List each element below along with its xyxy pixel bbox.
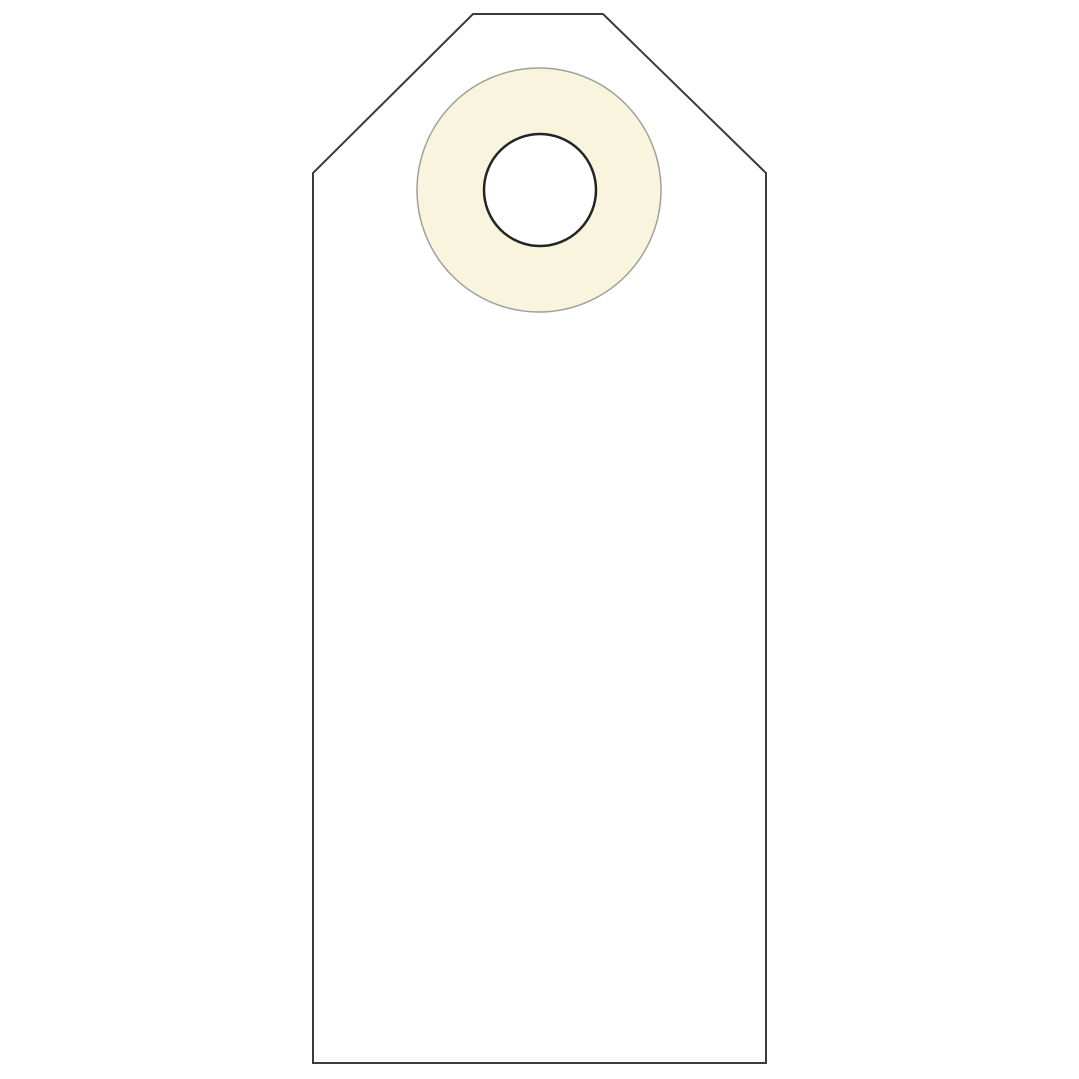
shipping-tag-graphic [0,0,1079,1079]
product-image [0,0,1079,1079]
punched-hole [484,134,596,246]
